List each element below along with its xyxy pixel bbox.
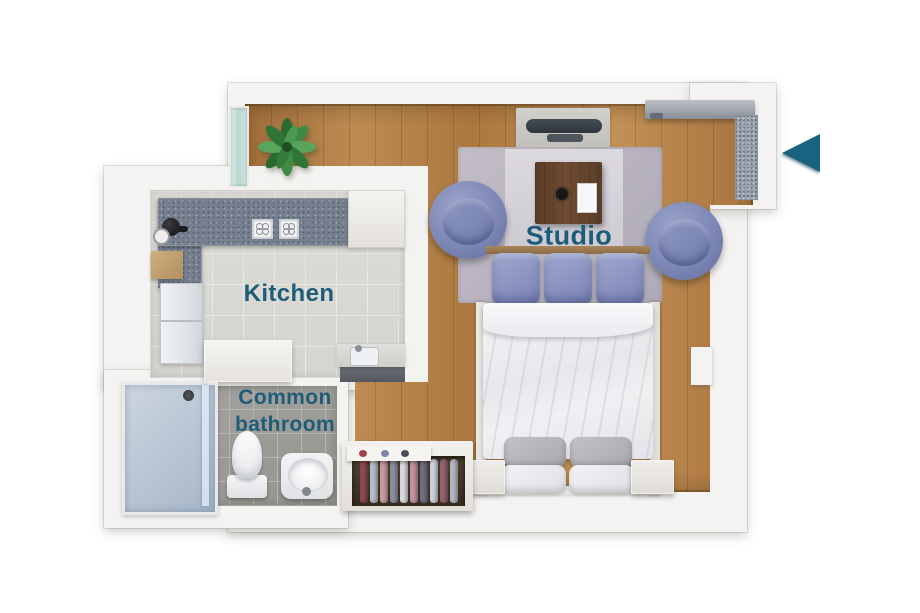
nightstand-right: [631, 460, 674, 494]
open-wardrobe: [342, 441, 473, 511]
washbasin: [281, 453, 333, 499]
entrance-arrow-left-icon: [782, 134, 820, 172]
bathroom-label: Common bathroom: [235, 384, 335, 438]
soundbar-icon: [547, 134, 583, 142]
hanging-clothes-icon: [430, 459, 438, 503]
cooktop-icon: [279, 219, 299, 239]
desk-gadget-icon: [556, 188, 568, 200]
bed-pillow: [569, 465, 634, 493]
bed-cushion: [544, 253, 592, 305]
sink-counter: [337, 344, 405, 367]
hanging-clothes-icon: [450, 459, 458, 503]
wardrobe-clothes: [352, 456, 465, 506]
shower-glass-panel: [202, 385, 209, 506]
kitchen-cabinet: [348, 190, 405, 248]
refrigerator: [160, 283, 203, 364]
shoe-icon: [381, 450, 389, 457]
hanging-clothes-icon: [370, 459, 378, 503]
kitchen-island: [204, 340, 292, 382]
hanging-clothes-icon: [380, 459, 388, 503]
hanging-clothes-icon: [400, 459, 408, 503]
door-handle-icon: [650, 113, 663, 119]
bed-pillow: [570, 437, 632, 468]
potted-plant-icon: [256, 116, 318, 178]
bed-cushion: [492, 253, 540, 305]
bathroom-label-line1: Common: [235, 384, 335, 411]
shoe-icon: [401, 450, 409, 457]
desk: [535, 162, 602, 224]
bed-duvet-fold: [483, 303, 653, 337]
paper-icon: [577, 183, 597, 213]
washbasin-faucet-icon: [302, 487, 311, 496]
hanging-clothes-icon: [360, 459, 368, 503]
hanging-clothes-icon: [440, 459, 448, 503]
faucet-valve-icon: [153, 228, 170, 245]
counter-front-panel: [340, 366, 405, 382]
bathroom-label-line2: bathroom: [235, 411, 335, 438]
hanging-clothes-icon: [410, 459, 418, 503]
bed-pillow: [501, 465, 566, 493]
small-faucet-icon: [355, 345, 362, 352]
shower-cabin: [122, 382, 218, 515]
bed-pillow: [504, 437, 566, 468]
cutting-board-icon: [151, 251, 183, 279]
toilet: [232, 431, 262, 479]
hanging-clothes-icon: [390, 459, 398, 503]
fridge-door-split: [161, 320, 202, 322]
floor-plan: Studio Kitchen Common bathroom: [0, 0, 920, 613]
bed-cushion: [596, 253, 644, 305]
double-bed: [476, 245, 660, 495]
shoe-icon: [359, 450, 367, 457]
tv-icon: [526, 119, 602, 133]
cooktop-icon: [252, 219, 273, 239]
wall-column: [691, 347, 712, 385]
window-icon: [229, 106, 249, 188]
armchair-seat: [658, 219, 711, 266]
kitchen-label: Kitchen: [244, 280, 335, 308]
wardrobe-shelf: [347, 446, 431, 461]
hanging-clothes-icon: [420, 459, 428, 503]
studio-label: Studio: [526, 221, 612, 252]
armchair-seat: [442, 198, 495, 245]
shower-head-icon: [183, 390, 194, 401]
tv-console: [516, 108, 610, 148]
doormat: [735, 115, 758, 200]
